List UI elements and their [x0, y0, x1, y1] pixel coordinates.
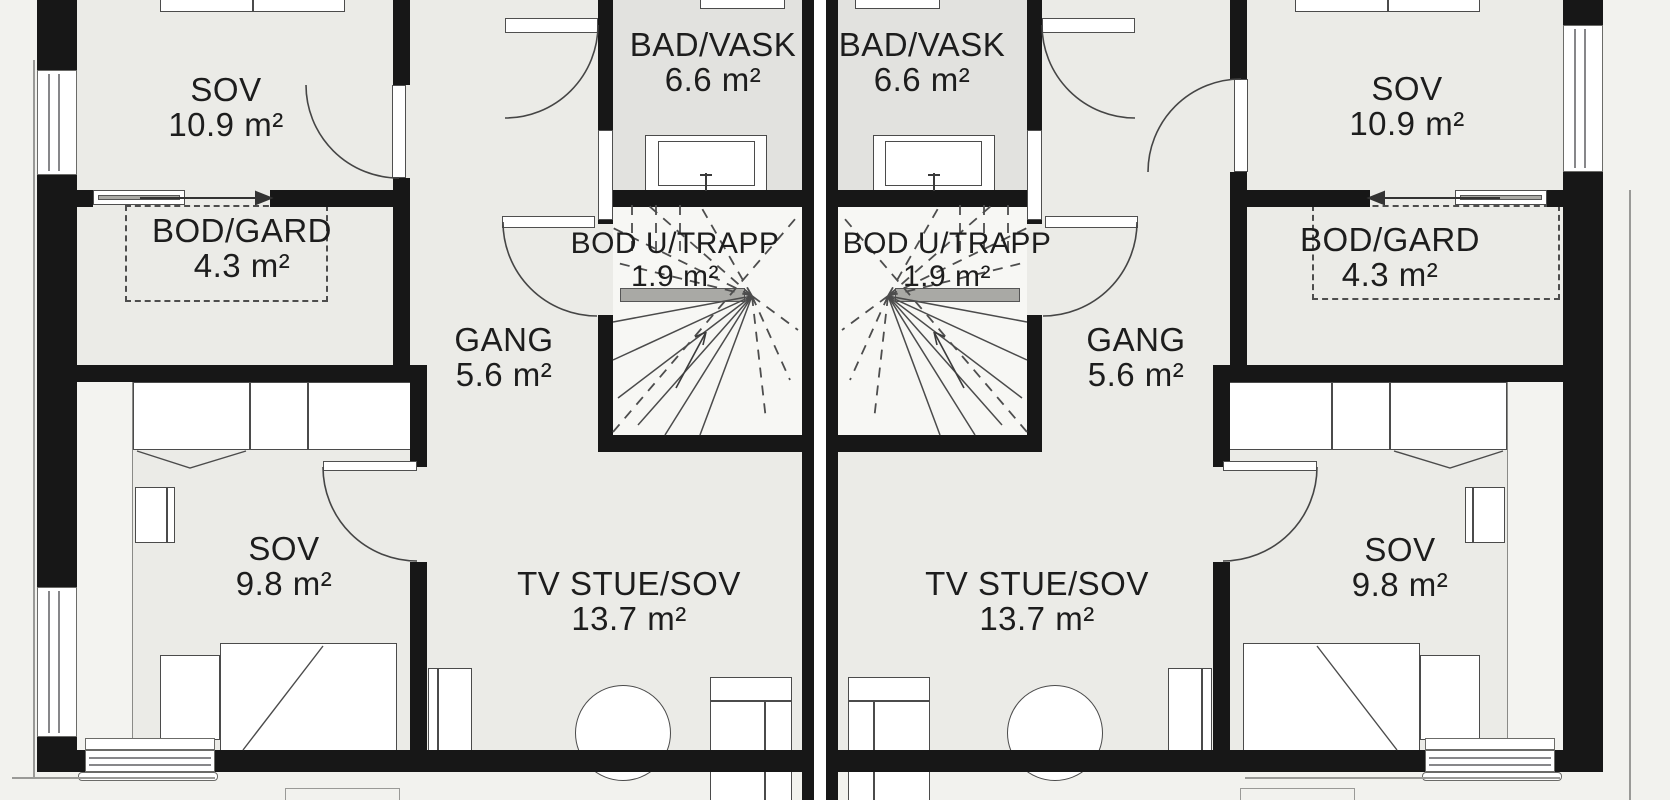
room-area: 4.3 m² — [152, 248, 332, 283]
tv-bench-edge — [437, 668, 439, 760]
wall — [828, 750, 1425, 772]
bed — [1223, 382, 1390, 450]
wall — [410, 382, 427, 467]
wall — [37, 365, 427, 382]
wall — [598, 435, 812, 452]
window-glass-line — [1429, 764, 1551, 766]
wall — [598, 0, 613, 130]
room-name: BOD/GARD — [1300, 222, 1480, 257]
room-name: SOV — [168, 72, 283, 107]
wall — [1027, 0, 1042, 130]
wall — [598, 315, 613, 435]
sink-basin — [658, 141, 755, 186]
room-name: BAD/VASK — [630, 27, 797, 62]
room-label-bod-gard-left: BOD/GARD 4.3 m² — [152, 213, 332, 283]
door-leaf — [505, 18, 598, 33]
wardrobe — [133, 382, 250, 450]
bed-divider — [1387, 0, 1389, 12]
window-sill — [1425, 738, 1555, 750]
desk — [1465, 487, 1505, 543]
wall — [838, 190, 1027, 207]
room-label-sov-bottom-left: SOV 9.8 m² — [236, 531, 333, 601]
wall — [270, 190, 398, 207]
room-area: 10.9 m² — [168, 107, 283, 142]
desk-edge — [1472, 487, 1474, 543]
window-glass-line — [1584, 29, 1586, 168]
window-glass-line — [58, 591, 60, 733]
wardrobe — [1390, 382, 1507, 450]
wall — [1027, 315, 1042, 435]
window — [37, 70, 77, 175]
window-sill — [85, 738, 215, 750]
wall — [1242, 190, 1370, 207]
room-label-tv-stue-right: TV STUE/SOV 13.7 m² — [925, 566, 1149, 636]
wall — [37, 750, 85, 772]
wall — [77, 190, 93, 207]
room-area: 6.6 m² — [839, 62, 1006, 97]
window-glass-line — [89, 757, 211, 759]
room-label-bod-u-trapp-right: BOD U/TRAPP 1.9 m² — [843, 227, 1052, 293]
wall — [1230, 0, 1247, 79]
room-name: TV STUE/SOV — [517, 566, 741, 601]
room-label-bod-gard-right: BOD/GARD 4.3 m² — [1300, 222, 1480, 292]
wall — [1213, 562, 1230, 750]
room-area: 1.9 m² — [571, 260, 780, 293]
party-wall — [802, 0, 814, 800]
bed-divider — [1331, 382, 1333, 450]
sofa-line — [710, 700, 792, 702]
room-name: GANG — [454, 322, 553, 357]
washer — [855, 0, 940, 9]
room-name: TV STUE/SOV — [925, 566, 1149, 601]
room-label-gang-right: GANG 5.6 m² — [1086, 322, 1185, 392]
bed-divider — [252, 0, 254, 12]
tv-bench-edge — [1201, 668, 1203, 760]
room-name: BAD/VASK — [839, 27, 1006, 62]
terrace-line — [1245, 777, 1560, 779]
wall — [1230, 172, 1247, 365]
room-name: SOV — [236, 531, 333, 566]
bed-divider — [307, 382, 309, 450]
wall — [215, 750, 812, 772]
door-leaf — [323, 461, 417, 471]
room-name: SOV — [1352, 532, 1449, 567]
desk-edge — [166, 487, 168, 543]
wall — [393, 0, 410, 85]
sink-basin — [885, 141, 982, 186]
room-area: 5.6 m² — [1086, 357, 1185, 392]
window-glass-line — [1429, 757, 1551, 759]
room-name: BOD U/TRAPP — [571, 227, 780, 260]
room-area: 13.7 m² — [517, 601, 741, 636]
room-label-sov-top-right: SOV 10.9 m² — [1349, 71, 1464, 141]
room-name: SOV — [1349, 71, 1464, 106]
wall — [828, 435, 1042, 452]
low-ceiling-strip — [77, 382, 133, 750]
wall — [1213, 382, 1230, 467]
wall — [1563, 0, 1603, 25]
room-area: 9.8 m² — [1352, 567, 1449, 602]
washer — [700, 0, 785, 9]
room-area: 10.9 m² — [1349, 106, 1464, 141]
window-glass-line — [89, 764, 211, 766]
door-leaf — [1045, 216, 1138, 228]
party-wall-gap — [814, 0, 826, 800]
door-leaf — [1042, 18, 1135, 33]
window-glass-line — [1574, 29, 1576, 168]
wall — [1547, 190, 1563, 207]
room-name: BOD/GARD — [152, 213, 332, 248]
wall — [393, 178, 410, 365]
wall — [410, 562, 427, 750]
window-glass-line — [48, 74, 50, 171]
window — [37, 587, 77, 737]
terrace-rect — [1240, 788, 1355, 800]
floor-plan: SOV 10.9 m² BOD/GARD 4.3 m² BAD/VASK 6.6… — [0, 0, 1670, 800]
room-name: BOD U/TRAPP — [843, 227, 1052, 260]
wall — [613, 190, 802, 207]
desk — [135, 487, 175, 543]
terrace-line — [1629, 190, 1631, 800]
sofa — [848, 677, 930, 800]
party-wall — [826, 0, 838, 800]
nightstand — [160, 655, 220, 740]
sofa-line — [848, 700, 930, 702]
room-area: 4.3 m² — [1300, 257, 1480, 292]
room-label-bod-u-trapp-left: BOD U/TRAPP 1.9 m² — [571, 227, 780, 293]
tv-bench — [428, 668, 472, 760]
door-leaf — [392, 85, 406, 178]
terrace-rect — [285, 788, 400, 800]
room-area: 9.8 m² — [236, 566, 333, 601]
wall — [1555, 750, 1603, 772]
cased-opening — [598, 130, 613, 220]
sofa — [710, 677, 792, 800]
terrace-line — [33, 60, 35, 778]
room-name: GANG — [1086, 322, 1185, 357]
bed — [220, 643, 397, 752]
room-label-gang-left: GANG 5.6 m² — [454, 322, 553, 392]
room-label-bad-vask-left: BAD/VASK 6.6 m² — [630, 27, 797, 97]
wall — [1213, 365, 1603, 382]
room-area: 5.6 m² — [454, 357, 553, 392]
window — [1425, 750, 1555, 772]
sliding-door-track — [98, 195, 180, 200]
room-area: 1.9 m² — [843, 260, 1052, 293]
room-label-bad-vask-right: BAD/VASK 6.6 m² — [839, 27, 1006, 97]
room-area: 13.7 m² — [925, 601, 1149, 636]
bed — [1243, 643, 1420, 752]
room-label-sov-top-left: SOV 10.9 m² — [168, 72, 283, 142]
nightstand — [1420, 655, 1480, 740]
room-label-tv-stue-left: TV STUE/SOV 13.7 m² — [517, 566, 741, 636]
room-label-sov-bottom-right: SOV 9.8 m² — [1352, 532, 1449, 602]
tv-bench — [1168, 668, 1212, 760]
window — [1563, 25, 1603, 172]
room-area: 6.6 m² — [630, 62, 797, 97]
window — [85, 750, 215, 772]
bed — [250, 382, 417, 450]
terrace-line — [12, 777, 215, 779]
cased-opening — [1027, 130, 1042, 220]
window-glass-line — [58, 74, 60, 171]
wall — [1563, 172, 1603, 767]
door-leaf — [1234, 79, 1248, 172]
wall — [37, 0, 77, 70]
sliding-door-track — [1460, 195, 1542, 200]
door-leaf — [1223, 461, 1317, 471]
low-ceiling-strip — [1507, 382, 1563, 750]
window-glass-line — [48, 591, 50, 733]
